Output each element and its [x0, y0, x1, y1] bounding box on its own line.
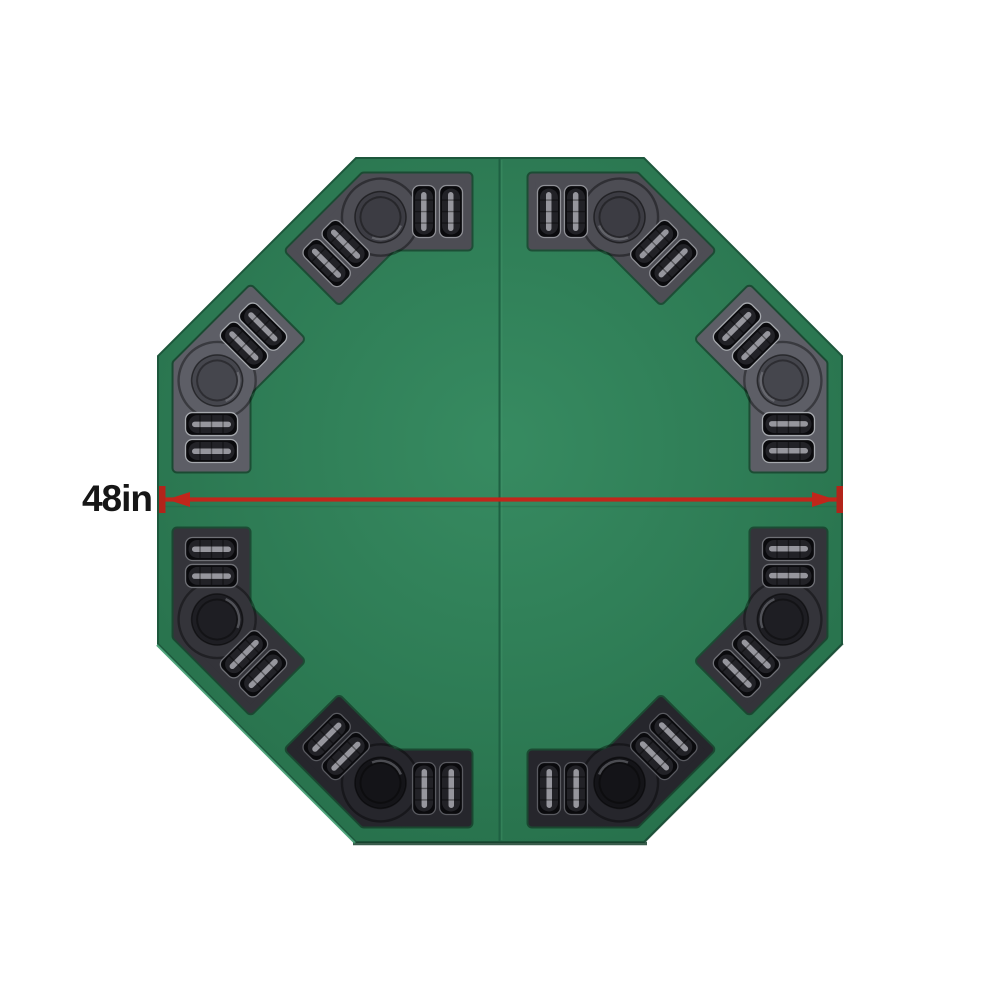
dimension-tick-left	[159, 486, 166, 513]
dimension-line	[163, 497, 839, 501]
dimension-label: 48in	[82, 478, 152, 519]
product-image: 48in	[0, 0, 1000, 1000]
product-photo-stage: 48in	[0, 0, 1000, 1000]
dimension-tick-right	[837, 486, 844, 513]
